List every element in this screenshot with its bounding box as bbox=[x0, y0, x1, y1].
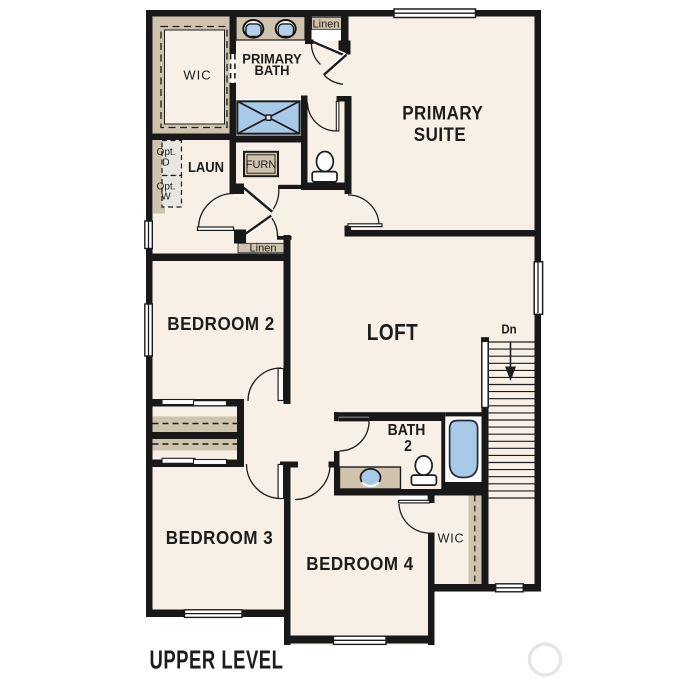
svg-text:UPPER LEVEL: UPPER LEVEL bbox=[150, 646, 284, 675]
svg-text:BEDROOM 4: BEDROOM 4 bbox=[306, 553, 413, 574]
svg-text:BEDROOM 2: BEDROOM 2 bbox=[167, 313, 274, 334]
svg-text:LOFT: LOFT bbox=[367, 320, 419, 345]
svg-text:2: 2 bbox=[404, 438, 412, 455]
svg-text:FURN: FURN bbox=[246, 159, 277, 171]
svg-text:BEDROOM 3: BEDROOM 3 bbox=[166, 527, 273, 548]
svg-text:SUITE: SUITE bbox=[414, 123, 467, 145]
svg-text:Linen: Linen bbox=[250, 243, 277, 255]
svg-text:Dn: Dn bbox=[501, 322, 516, 337]
svg-text:W: W bbox=[161, 192, 171, 203]
svg-text:BATH: BATH bbox=[388, 422, 426, 439]
svg-text:Opt.: Opt. bbox=[157, 147, 176, 158]
svg-text:D: D bbox=[162, 158, 169, 169]
svg-text:WIC: WIC bbox=[183, 68, 211, 83]
svg-text:PRIMARY: PRIMARY bbox=[402, 101, 483, 123]
svg-text:BATH: BATH bbox=[254, 63, 289, 79]
svg-text:WIC: WIC bbox=[438, 532, 465, 546]
svg-text:Linen: Linen bbox=[313, 19, 340, 31]
svg-text:LAUN: LAUN bbox=[188, 159, 224, 175]
